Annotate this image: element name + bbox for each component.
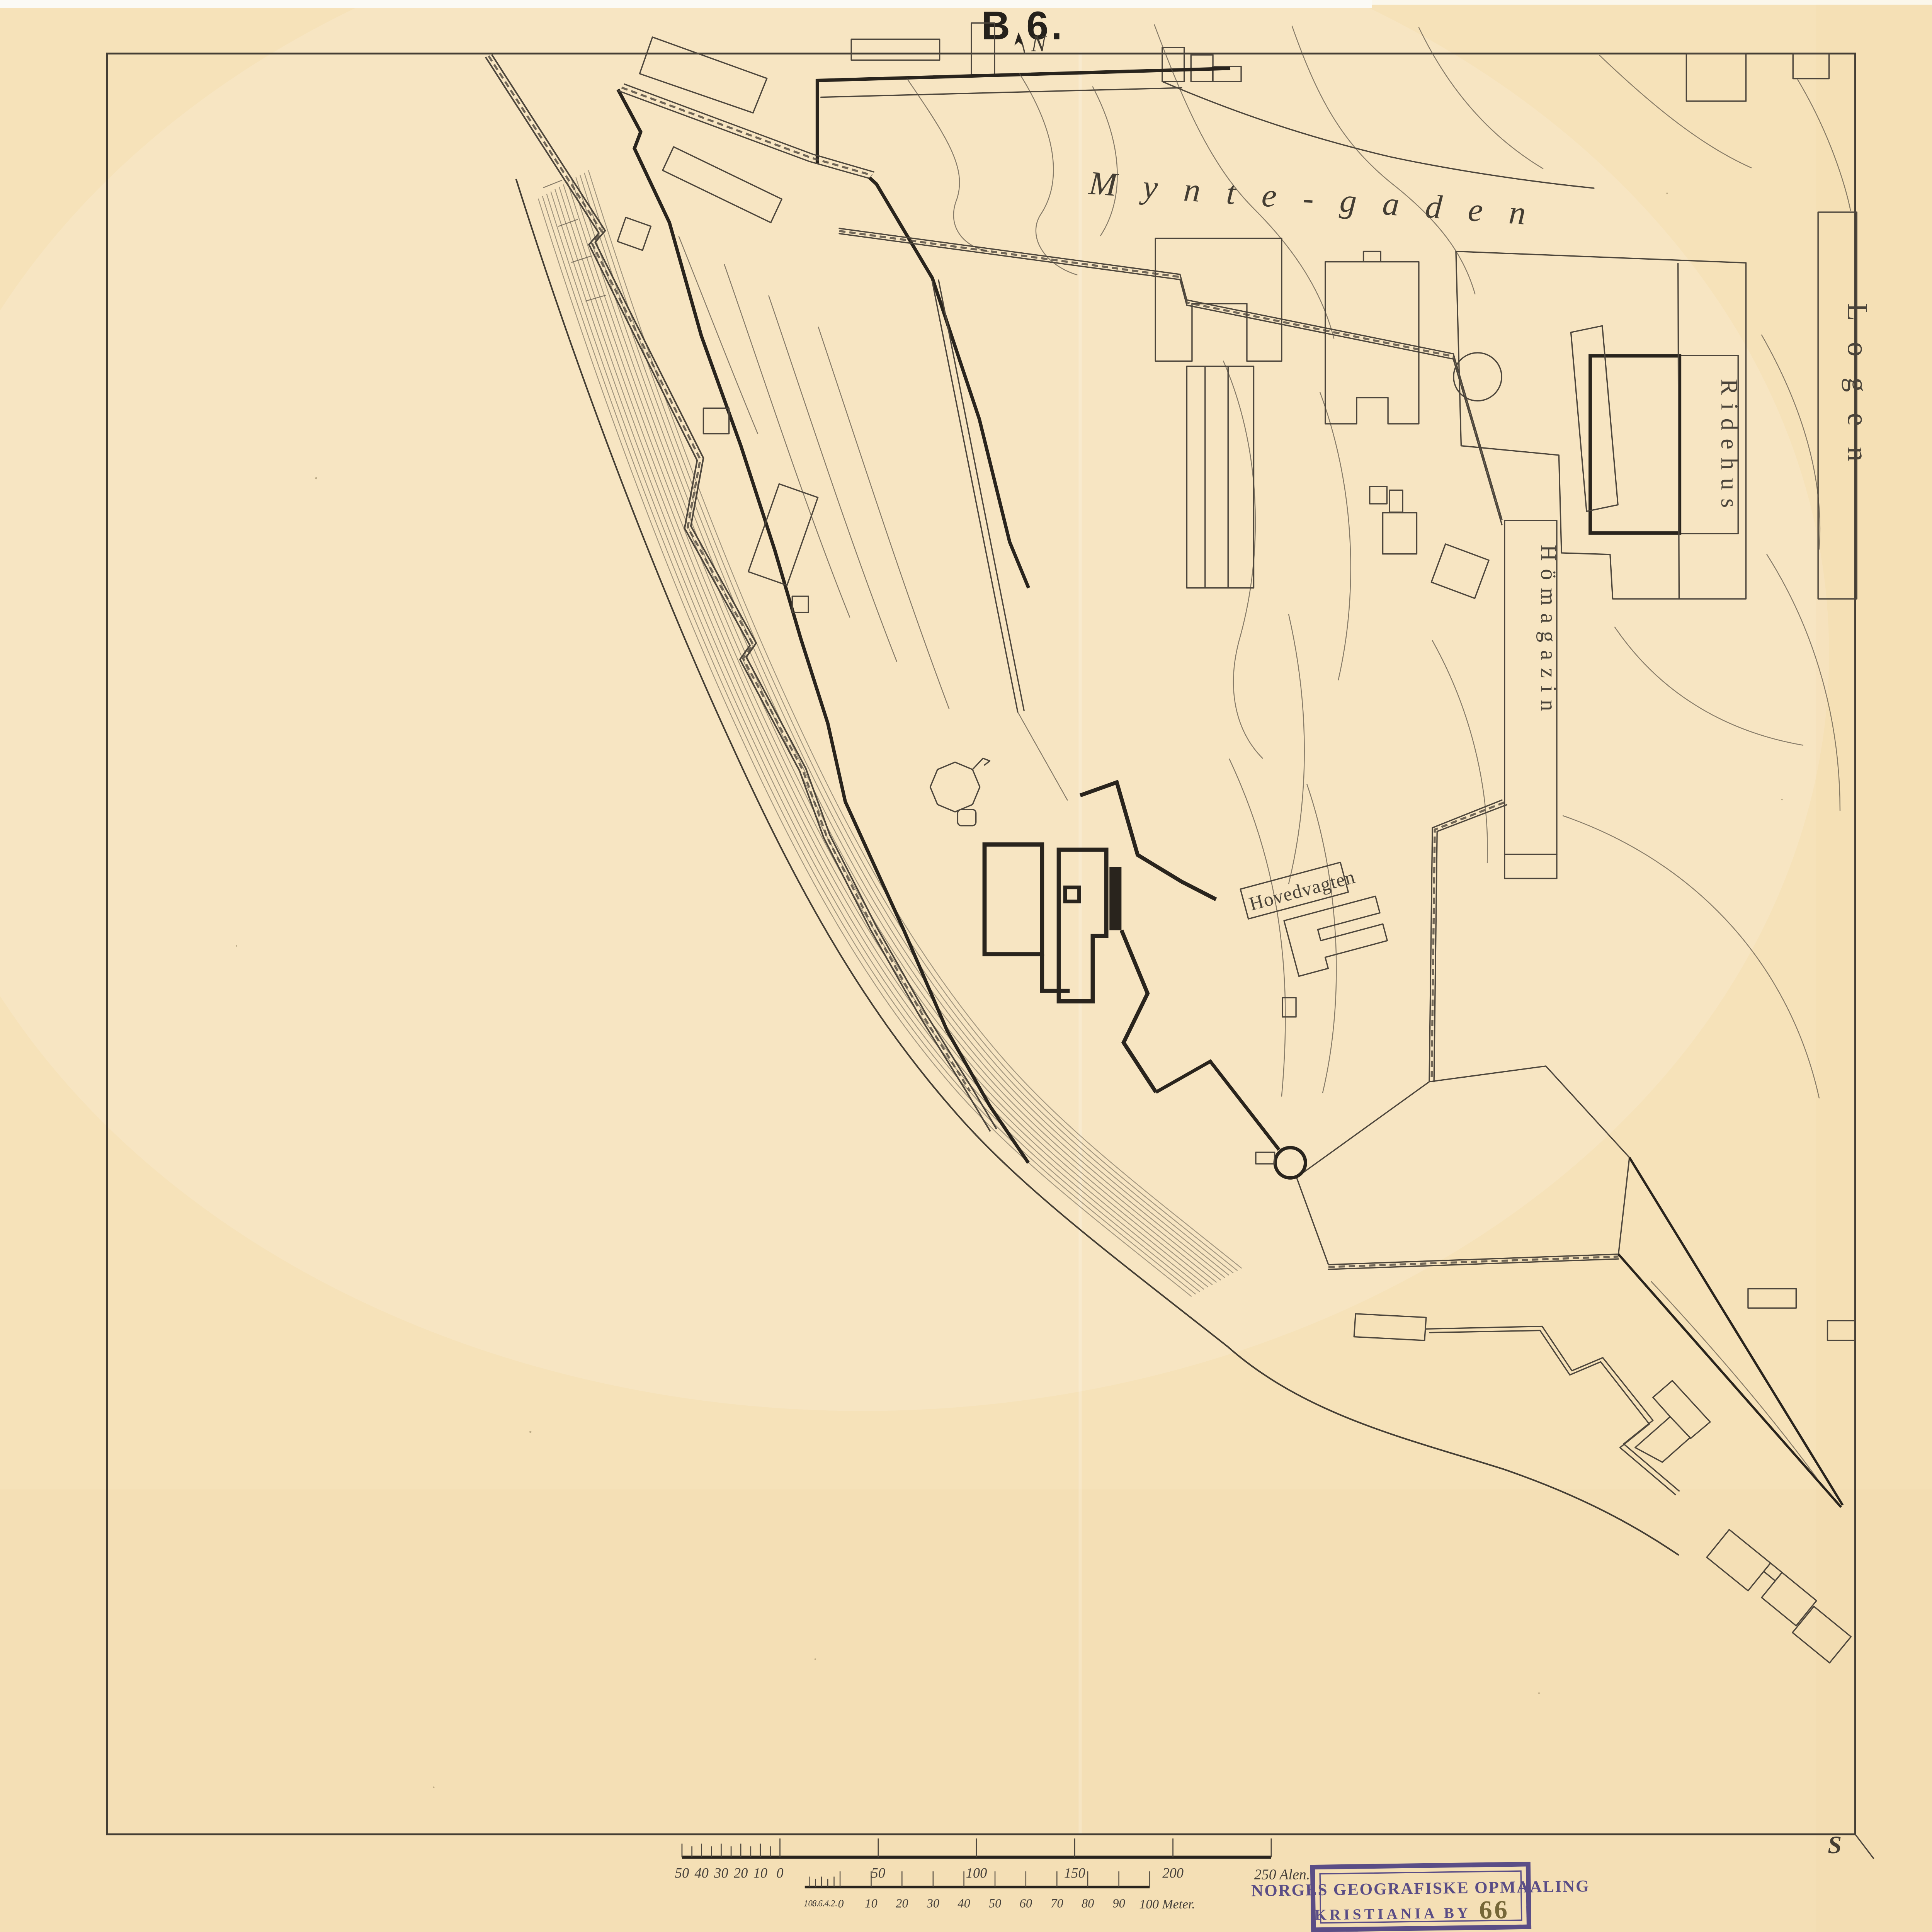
meter-tick-label: 8. (812, 1899, 819, 1908)
meter-tick-label: 30 (927, 1896, 939, 1910)
map-sheet: S B 6. N M y n t e - g a d e n (0, 0, 1932, 1932)
alen-tick-label: 50 (871, 1865, 886, 1881)
alen-tick-label: 30 (714, 1865, 728, 1881)
meter-tick-label: 70 (1051, 1896, 1063, 1910)
meter-tick-label: 10 (865, 1896, 877, 1910)
meter-tick-label: 90 (1112, 1896, 1125, 1910)
alen-tick-label: 100 (966, 1865, 987, 1881)
alen-tick-label: 50 (675, 1865, 689, 1881)
stamp-number: 66 (1479, 1895, 1509, 1924)
alen-tick-label: 20 (734, 1865, 748, 1881)
meter-tick-label: 6. (818, 1899, 825, 1908)
alen-tick-label: 150 (1064, 1865, 1085, 1881)
meter-tick-label: 50 (989, 1896, 1001, 1910)
alen-tick-label: 40 (694, 1865, 709, 1881)
meter-end-label: 100 Meter. (1139, 1897, 1195, 1912)
alen-tick-label: 10 (753, 1865, 768, 1881)
meter-tick-label: 60 (1020, 1896, 1032, 1910)
stamp-line2: KRISTIANIA BY (1315, 1905, 1471, 1923)
building-label-logen: Logen (1841, 303, 1873, 482)
meter-tick-label: 40 (957, 1896, 970, 1910)
alen-tick-label: 0 (776, 1865, 783, 1881)
building-label-homagazin: Hömagazin (1536, 545, 1561, 719)
meter-tick-label: 20 (896, 1896, 908, 1910)
meter-tick-label: 2. (831, 1899, 837, 1908)
building-label-ridehus: Ridehus (1716, 379, 1742, 516)
alen-end-label: 250 Alen. (1254, 1866, 1310, 1883)
meter-tick-label: 4. (825, 1899, 831, 1908)
paper-background (0, 0, 1932, 1932)
meter-tick-label: 80 (1082, 1896, 1094, 1910)
south-corner-label: S (1828, 1831, 1842, 1859)
meter-tick-label: 0 (838, 1897, 844, 1910)
north-label: N (1031, 31, 1047, 56)
alen-tick-label: 200 (1162, 1865, 1184, 1881)
